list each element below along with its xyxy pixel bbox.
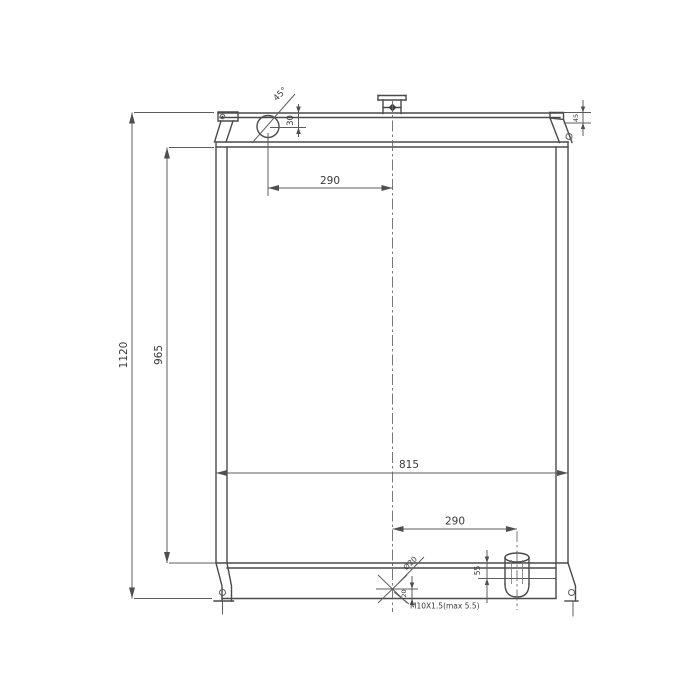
top-left-bracket [215,112,239,142]
note-drain-thread: M10X1.5(max 5.5) [410,602,480,611]
dim-drain-hole-diameter: Ø20 [402,554,419,571]
filler-cap [378,96,406,114]
radiator-technical-drawing: 1120 965 290 30 45° 45 815 290 55 Ø20 20… [0,0,700,700]
dimension-labels: 1120 965 290 30 45° 45 815 290 55 Ø20 20… [118,86,580,611]
dim-core-width: 815 [399,459,419,471]
drawing-canvas: 1120 965 290 30 45° 45 815 290 55 Ø20 20… [0,0,700,700]
dim-outlet-height: 55 [473,566,482,576]
radiator-outline [216,113,568,599]
dim-bracket-hole-offset: 45 [572,114,580,122]
dim-filler-offset-horizontal: 290 [320,175,340,187]
dim-core-height: 965 [153,345,165,365]
dim-outlet-offset-horizontal: 290 [445,516,465,528]
bracket-bolt-hole [569,590,575,596]
dim-filler-offset-vertical: 30 [286,115,296,126]
dim-drain-offset-vertical: 20 [400,589,408,597]
dim-overall-height: 1120 [118,342,130,369]
bottom-right-bracket [565,563,578,616]
bottom-left-bracket [214,563,234,614]
dim-filler-chamfer-angle: 45° [272,86,290,104]
dimension-lines [132,100,591,605]
